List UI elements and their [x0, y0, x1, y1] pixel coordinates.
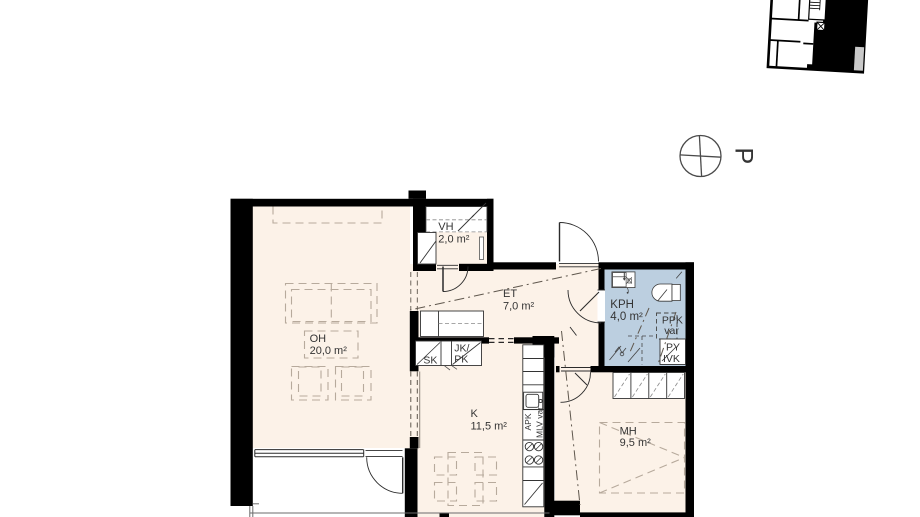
- svg-text:PY: PY: [666, 342, 680, 354]
- svg-text:20,0 m²: 20,0 m²: [310, 345, 348, 357]
- svg-text:var: var: [664, 325, 679, 337]
- svg-text:4,0 m²: 4,0 m²: [610, 311, 643, 323]
- svg-text:OH: OH: [310, 333, 327, 345]
- svg-text:7,0 m²: 7,0 m²: [503, 301, 535, 313]
- svg-text:VH: VH: [438, 221, 453, 233]
- svg-text:ET: ET: [503, 288, 517, 300]
- svg-text:MLV var: MLV var: [535, 407, 545, 438]
- svg-text:IVK: IVK: [663, 353, 680, 365]
- svg-text:K: K: [471, 408, 479, 420]
- svg-text:9,5 m²: 9,5 m²: [620, 437, 652, 449]
- svg-text:SK: SK: [423, 355, 437, 367]
- svg-text:MH: MH: [620, 426, 637, 438]
- svg-text:KPH: KPH: [610, 299, 634, 311]
- svg-text:2,0 m²: 2,0 m²: [438, 234, 470, 246]
- svg-text:APK: APK: [523, 413, 533, 430]
- svg-text:11,5 m²: 11,5 m²: [471, 421, 508, 433]
- svg-text:P: P: [730, 148, 758, 165]
- svg-text:PK: PK: [454, 353, 468, 365]
